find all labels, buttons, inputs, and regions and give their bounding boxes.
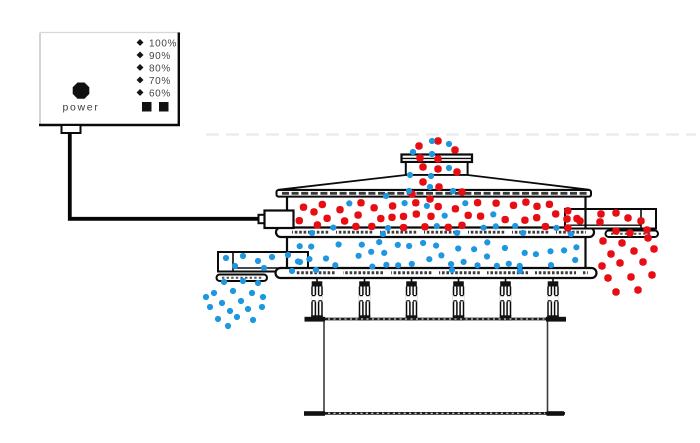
svg-text:100%: 100% — [149, 38, 177, 49]
svg-text:70%: 70% — [149, 76, 171, 87]
svg-text:80%: 80% — [149, 63, 171, 74]
svg-text:power: power — [62, 102, 99, 114]
svg-text:90%: 90% — [149, 51, 171, 62]
svg-text:60%: 60% — [149, 88, 171, 99]
